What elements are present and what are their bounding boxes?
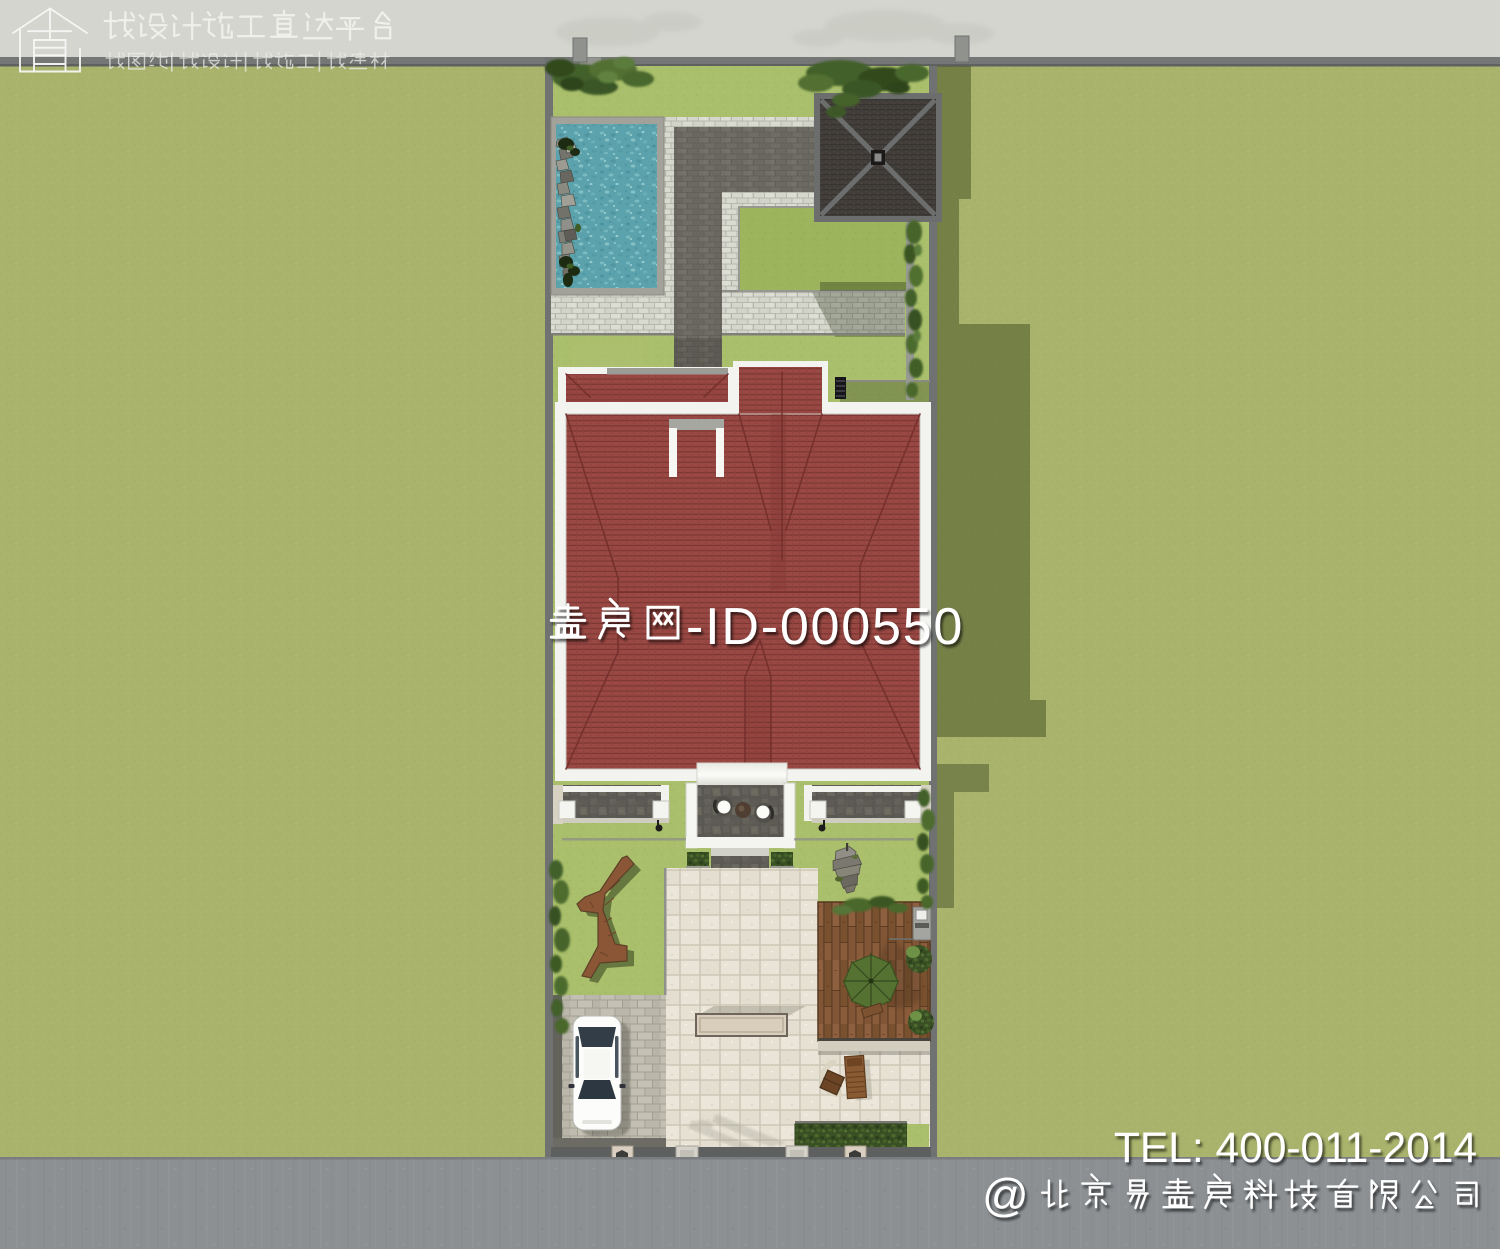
svg-text:TEL: 400-011-2014: TEL: 400-011-2014 bbox=[1114, 1125, 1477, 1172]
svg-text:@: @ bbox=[982, 1169, 1029, 1221]
svg-text:-ID-000550: -ID-000550 bbox=[686, 598, 964, 656]
